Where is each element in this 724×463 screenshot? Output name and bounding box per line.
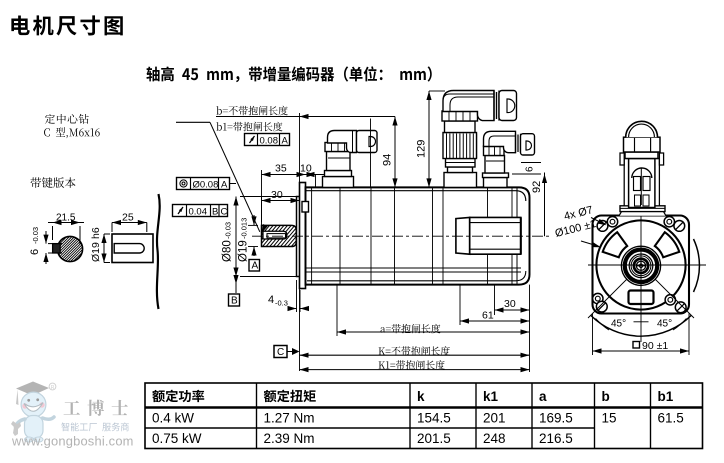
svg-text:61: 61 (482, 310, 494, 322)
svg-text:45°: 45° (657, 319, 672, 330)
svg-text:Ø19: Ø19 (238, 240, 250, 262)
svg-text:b1: b1 (658, 389, 674, 404)
svg-text:k1: k1 (483, 389, 499, 404)
svg-text:169.5: 169.5 (539, 411, 573, 426)
svg-text:-0.03: -0.03 (224, 222, 233, 239)
svg-text:A: A (221, 180, 228, 191)
svg-text:A: A (282, 136, 289, 147)
svg-text:k: k (417, 389, 425, 404)
svg-text:30: 30 (504, 298, 516, 310)
svg-text:0.08: 0.08 (260, 136, 279, 147)
svg-text:C: C (221, 207, 228, 218)
svg-text:www.gongboshi.com: www.gongboshi.com (11, 434, 134, 449)
svg-text:21.5: 21.5 (56, 213, 76, 224)
svg-text:0.04: 0.04 (189, 207, 208, 218)
svg-text:6: 6 (525, 166, 536, 172)
svg-text:-0.3: -0.3 (275, 299, 288, 308)
svg-text:15: 15 (602, 411, 617, 426)
svg-text:92: 92 (531, 181, 543, 193)
svg-text:a: a (539, 389, 547, 404)
svg-text:6: 6 (29, 249, 41, 255)
svg-text:25: 25 (122, 212, 134, 224)
svg-text:0.4 kW: 0.4 kW (152, 411, 194, 426)
svg-text:B: B (231, 296, 238, 307)
svg-text:-0.03: -0.03 (31, 227, 40, 244)
svg-text:4: 4 (268, 294, 274, 306)
svg-text:b: b (602, 389, 610, 404)
svg-text:248: 248 (483, 431, 506, 446)
svg-text:90 ±1: 90 ±1 (642, 340, 668, 352)
svg-text:45°: 45° (611, 319, 626, 330)
svg-text:201.5: 201.5 (417, 431, 451, 446)
svg-text:0.75 kW: 0.75 kW (152, 431, 202, 446)
svg-text:129: 129 (416, 140, 428, 158)
svg-text:Ø0.08: Ø0.08 (193, 180, 219, 191)
svg-text:35: 35 (275, 163, 287, 175)
svg-text:201: 201 (483, 411, 506, 426)
svg-text:94: 94 (382, 154, 394, 166)
svg-text:216.5: 216.5 (539, 431, 573, 446)
svg-text:Ø100 ±1: Ø100 ±1 (554, 218, 598, 240)
svg-text:h6: h6 (90, 227, 102, 239)
svg-text:30: 30 (271, 189, 283, 201)
svg-text:10: 10 (300, 163, 312, 175)
svg-text:R: R (51, 385, 55, 391)
svg-text:Ø80: Ø80 (222, 240, 234, 262)
svg-text:A: A (252, 261, 259, 272)
svg-text:C: C (277, 347, 284, 358)
svg-text:B: B (212, 207, 218, 218)
svg-text:154.5: 154.5 (417, 411, 451, 426)
svg-text:2.39 Nm: 2.39 Nm (264, 431, 315, 446)
svg-text:Ø19: Ø19 (90, 242, 102, 262)
svg-text:61.5: 61.5 (658, 411, 684, 426)
svg-text:-0.013: -0.013 (240, 218, 249, 239)
svg-text:1.27 Nm: 1.27 Nm (264, 411, 315, 426)
